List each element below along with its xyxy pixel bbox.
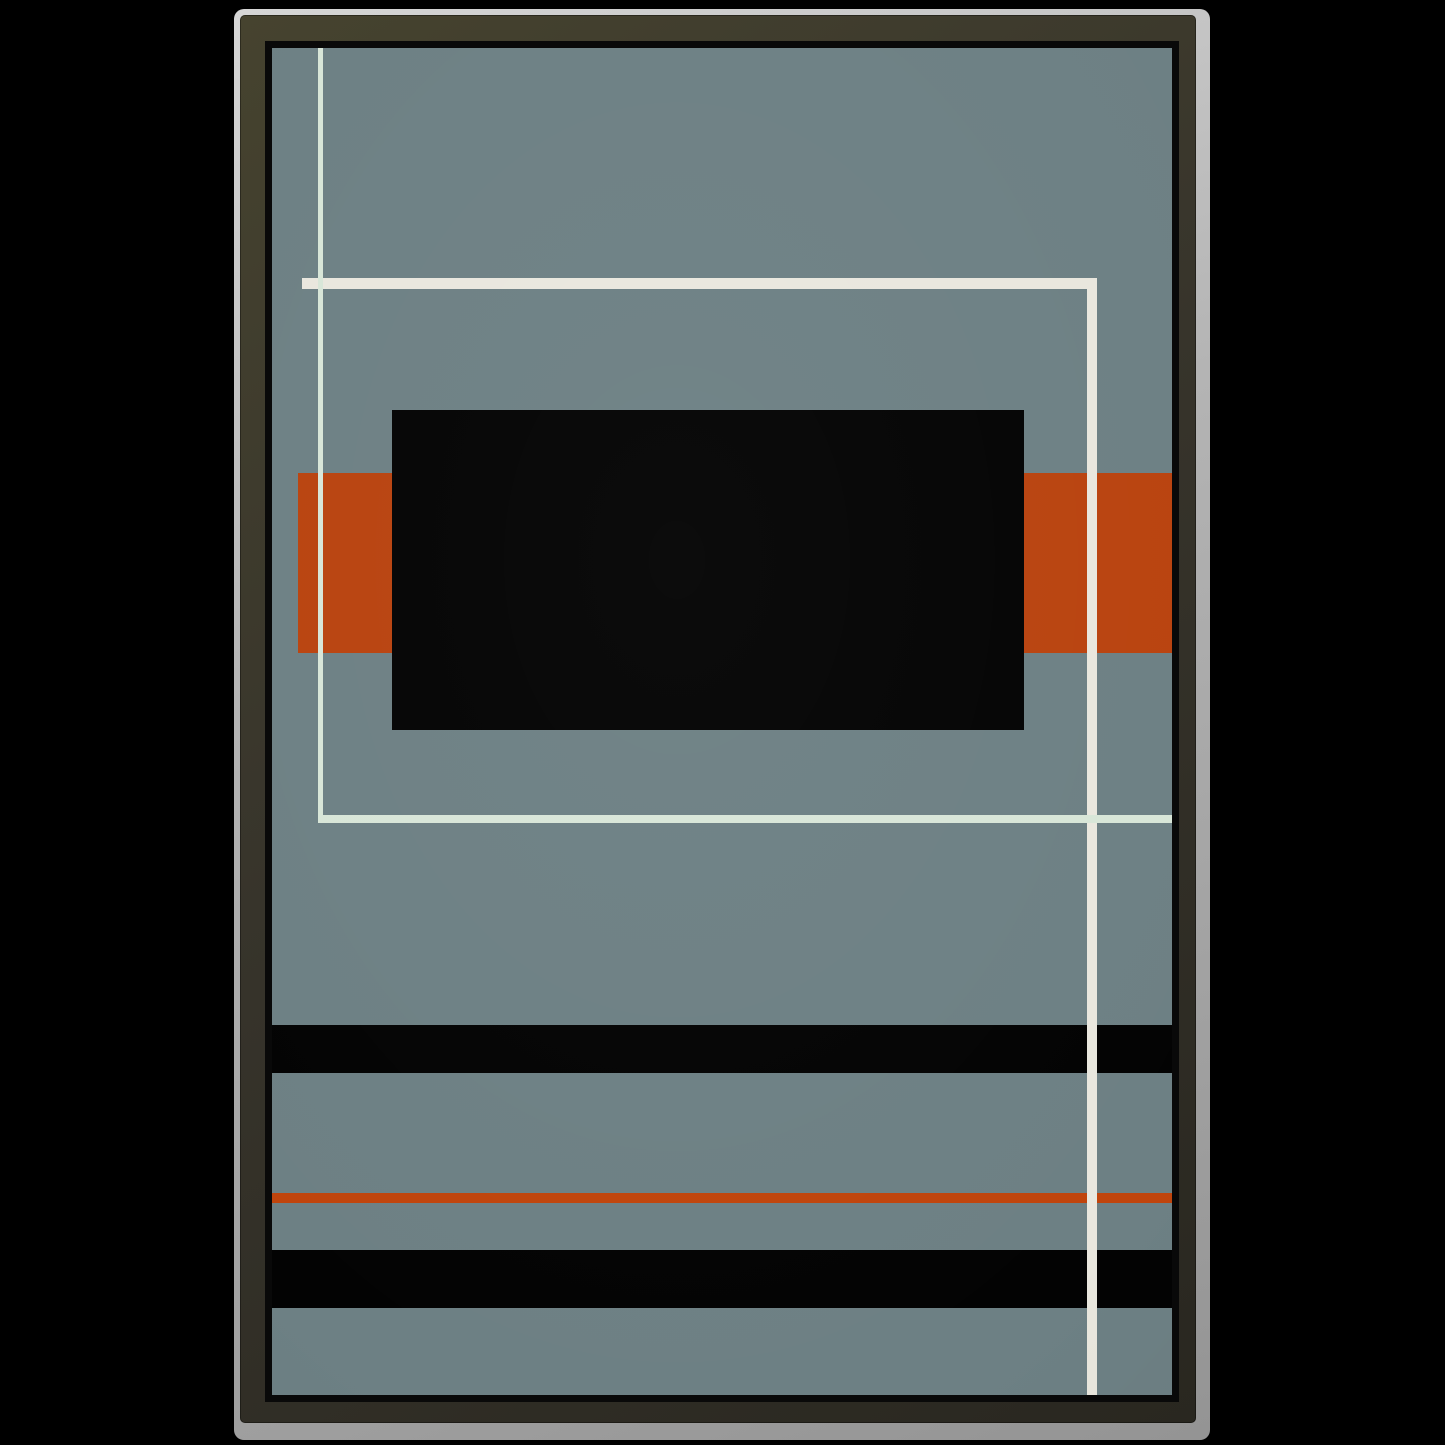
right-orange-bar: [1024, 473, 1172, 653]
thin-vertical-line: [318, 48, 323, 823]
orange-rule-line: [272, 1193, 1172, 1203]
black-stripe-top: [272, 1025, 1172, 1073]
mockup-canvas: [0, 0, 1445, 1445]
poster-frame: [240, 15, 1196, 1423]
thick-vertical-line: [1087, 278, 1097, 1395]
paper-edge: [234, 9, 1210, 1440]
thick-horizontal-line: [302, 278, 1097, 289]
thin-horizontal-line: [318, 815, 1172, 823]
black-stripe-bottom: [272, 1250, 1172, 1308]
left-orange-bar: [298, 473, 392, 653]
abstract-artwork: [265, 41, 1179, 1402]
black-rectangle: [392, 410, 1024, 730]
